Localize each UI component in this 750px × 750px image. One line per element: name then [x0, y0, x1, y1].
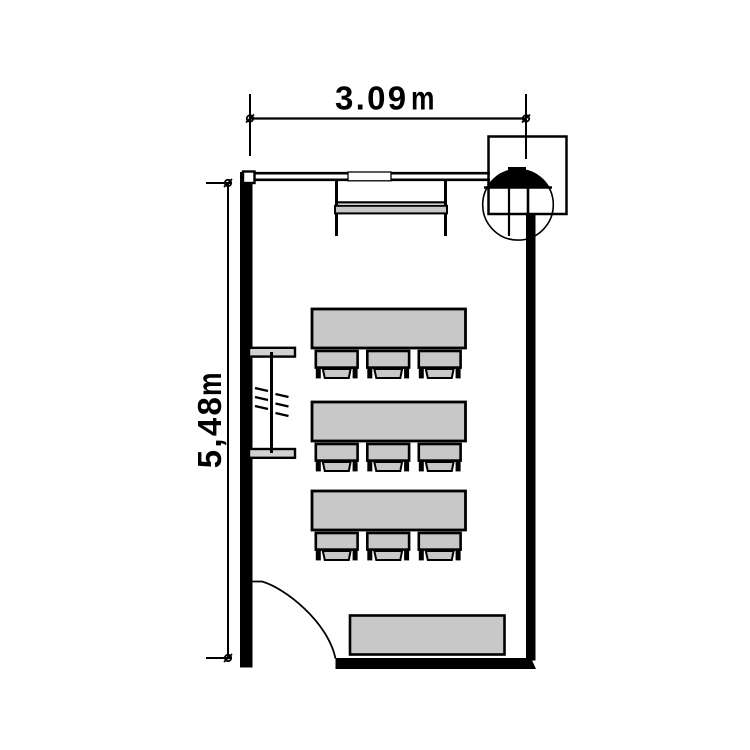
svg-text:5,48: 5,48: [191, 395, 228, 468]
svg-text:m: m: [192, 373, 228, 396]
svg-text:m: m: [411, 81, 434, 117]
svg-text:3.09: 3.09: [335, 80, 408, 117]
